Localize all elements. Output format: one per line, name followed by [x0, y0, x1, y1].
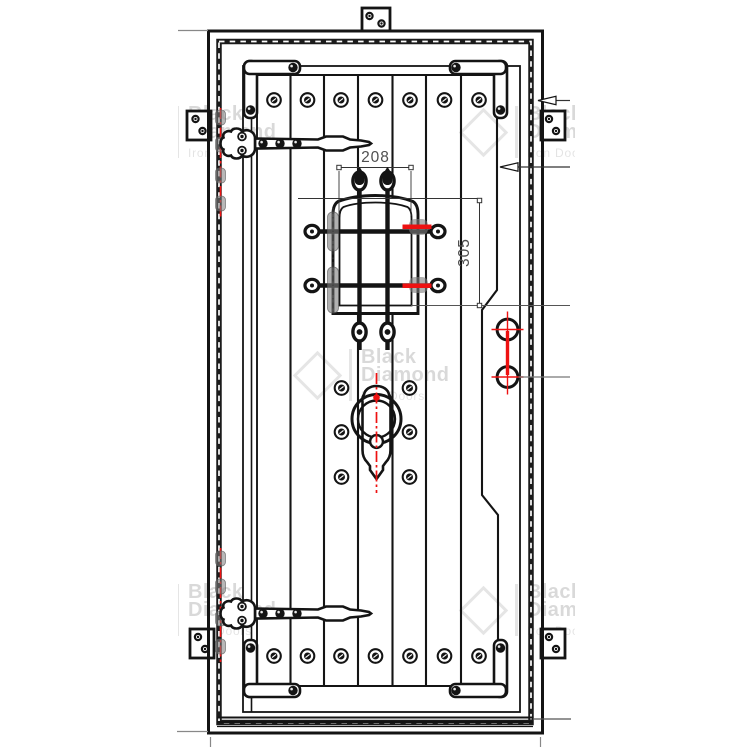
leader-arrow-slab — [500, 163, 570, 171]
strap-hinge-bottom — [221, 599, 372, 629]
mounting-tab-left-bottom — [190, 629, 214, 658]
strap-hinge-top — [221, 129, 372, 159]
latch-highlight-red — [403, 284, 432, 289]
dimension-width-label: 208 — [361, 149, 390, 166]
mounting-tab-right-top — [541, 111, 565, 140]
latch-highlight-red — [403, 225, 432, 230]
plank-screws-bottom-row — [267, 649, 486, 663]
door-elevation-drawing: 208 305 — [0, 0, 747, 747]
drawing-sheet: Black Diamond Iron Doors Black Diamond I… — [0, 0, 747, 747]
grille-inner-frame — [340, 203, 412, 306]
mounting-tab-right-bottom — [541, 629, 565, 658]
dimension-height-label: 305 — [456, 238, 473, 267]
door-handle — [352, 373, 401, 493]
plank-screws-top-row — [267, 93, 486, 107]
mounting-tab-top — [362, 8, 390, 31]
door-frame — [209, 31, 543, 733]
grille-finials — [355, 167, 393, 185]
handle-center-mark — [373, 394, 380, 401]
lock-stile-edge — [482, 75, 498, 686]
